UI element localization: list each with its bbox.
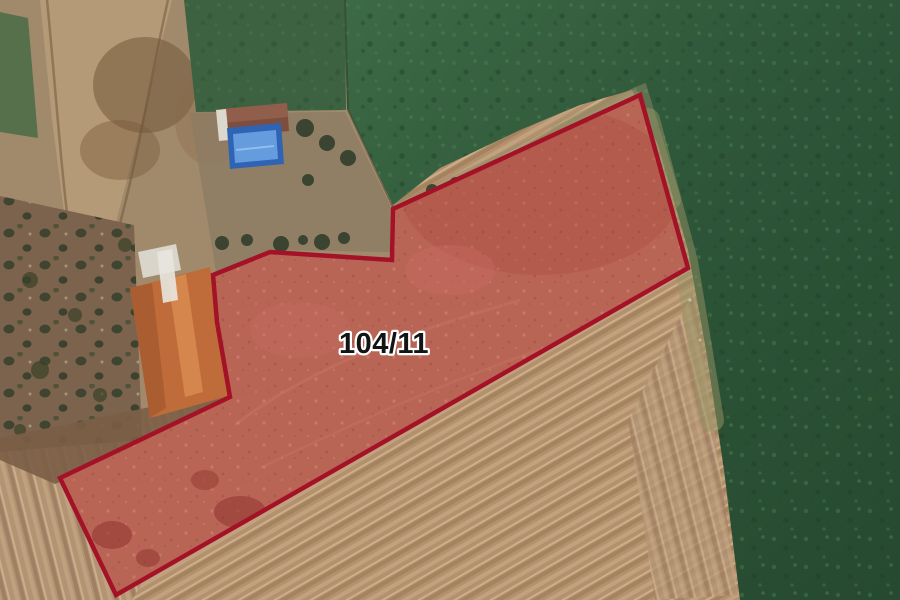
swimming-pool [227, 123, 284, 169]
satellite-map: 104/11 [0, 0, 900, 600]
parcel-label: 104/11 [339, 328, 429, 360]
map-viewport[interactable]: 104/11 [0, 0, 900, 600]
lawn [184, 0, 346, 112]
